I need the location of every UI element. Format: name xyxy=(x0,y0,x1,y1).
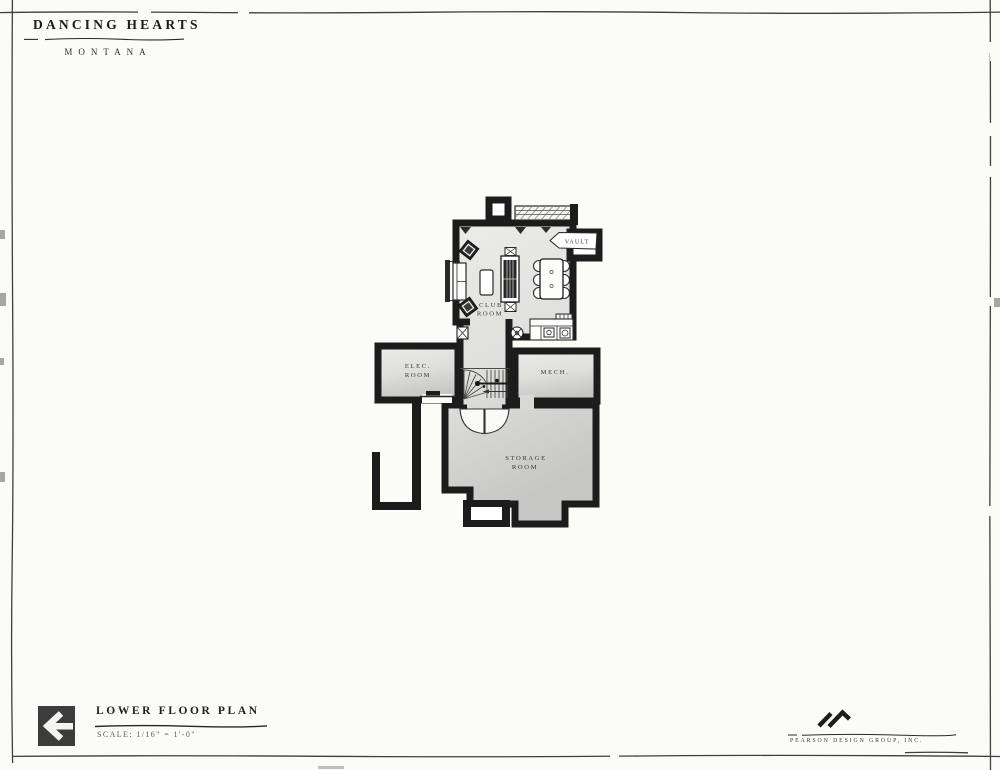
l-wall-horizontal xyxy=(372,502,421,510)
coffee-table xyxy=(480,270,493,295)
scan-artifact xyxy=(0,472,5,482)
fan-coil-icon xyxy=(511,327,523,339)
scan-artifact xyxy=(994,298,1000,307)
frame-right-line xyxy=(990,0,991,770)
media-cabinet xyxy=(501,248,519,312)
club-room-label-1: CLUB xyxy=(479,302,503,309)
bar-sink xyxy=(544,328,554,337)
stub-wall xyxy=(412,400,421,510)
frame-left-line xyxy=(12,0,13,763)
elec-room-label-2: ROOM xyxy=(405,372,431,379)
scan-artifact xyxy=(0,230,5,239)
project-title: DANCING HEARTS xyxy=(33,17,201,33)
left-arrow-icon xyxy=(38,706,75,746)
drawing-title-underline xyxy=(95,723,267,730)
elec-door-threshold xyxy=(426,391,440,396)
vault-label-tag: VAULT xyxy=(550,233,597,250)
frame-bottom-line xyxy=(12,755,1000,756)
dining-table-with-chairs xyxy=(534,259,570,299)
mech-door-opening xyxy=(520,395,534,410)
retaining-walls xyxy=(372,400,421,510)
l-wall-vertical xyxy=(372,452,380,510)
scale-label: SCALE: 1/16" = 1'-0" xyxy=(97,730,196,739)
project-location: MONTANA xyxy=(33,47,183,57)
mountain-peaks-logo-icon xyxy=(816,704,856,730)
scan-artifact xyxy=(0,293,6,306)
mech-room-label: MECH. xyxy=(541,369,570,376)
elec-room-label-1: ELEC. xyxy=(405,363,431,370)
vault-label: VAULT xyxy=(565,239,590,246)
project-title-underline xyxy=(24,36,184,43)
drawing-title: LOWER FLOOR PLAN xyxy=(96,705,260,717)
bar-appliance xyxy=(560,328,570,338)
top-window-well-room xyxy=(489,200,508,219)
frame-bottom-accent xyxy=(905,752,968,753)
storage-room-label-2: ROOM xyxy=(512,464,538,471)
sofa xyxy=(453,263,466,300)
equipment-x-box xyxy=(457,327,468,339)
lower-floor-plan-drawing: VAULT xyxy=(360,186,616,538)
club-room-label-2: ROOM xyxy=(477,311,503,318)
firm-name: PEARSON DESIGN GROUP, INC. xyxy=(790,738,923,744)
firm-block: PEARSON DESIGN GROUP, INC. xyxy=(788,704,973,752)
scan-artifact xyxy=(0,358,4,365)
scan-artifact xyxy=(318,766,344,769)
bar-counter xyxy=(530,319,573,340)
bottom-window-well xyxy=(463,500,510,527)
mech-room-floor xyxy=(515,351,597,401)
storage-room-label-1: STORAGE xyxy=(505,455,547,462)
